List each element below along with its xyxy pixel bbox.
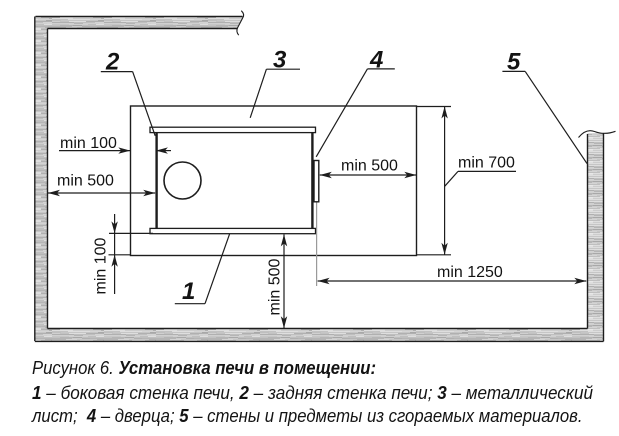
svg-text:4: 4 <box>369 47 383 74</box>
svg-text:min 100: min 100 <box>60 135 117 152</box>
svg-text:min 1250: min 1250 <box>437 264 503 281</box>
svg-text:1: 1 <box>182 278 195 305</box>
svg-text:min 100: min 100 <box>93 237 110 294</box>
svg-text:min 700: min 700 <box>458 155 515 172</box>
svg-text:min 500: min 500 <box>341 157 398 174</box>
svg-text:min 500: min 500 <box>57 173 114 190</box>
svg-text:5: 5 <box>507 49 521 76</box>
svg-text:3: 3 <box>273 47 287 74</box>
svg-text:min 500: min 500 <box>267 258 284 315</box>
svg-text:2: 2 <box>105 49 120 76</box>
